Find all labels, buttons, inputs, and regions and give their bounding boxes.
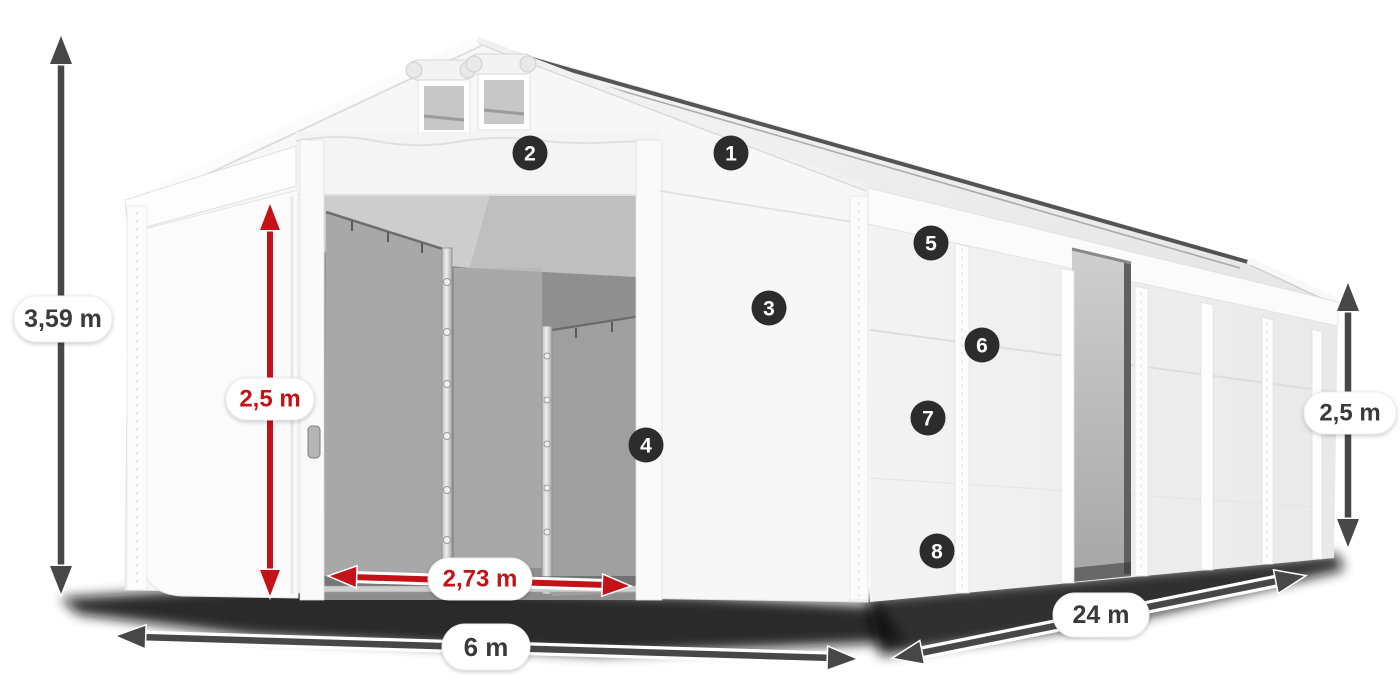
dimension-total-height: 3,59 m	[14, 36, 112, 594]
tent-illustration	[125, 40, 1338, 602]
interior-ceiling-right	[470, 196, 654, 278]
frame-pole-1	[442, 248, 452, 586]
door-jamb-right	[636, 140, 662, 600]
callout-5: 5	[914, 226, 949, 261]
callout-1: 1	[714, 136, 749, 171]
side-door-pole	[1124, 262, 1131, 574]
side-height-label: 2,5 m	[1319, 400, 1380, 427]
callout-8: 8	[920, 534, 955, 569]
inner-curtain-1	[324, 212, 446, 592]
product-diagram-stage: 3,59 m 2,5 m 2,73 m 6 m 24 m	[0, 0, 1400, 700]
callout-4-number: 4	[640, 435, 652, 458]
width-label: 6 m	[464, 632, 509, 662]
callout-3-number: 3	[763, 298, 775, 321]
callout-6-number: 6	[976, 335, 988, 358]
door-header-beam	[296, 132, 660, 196]
callout-7-number: 7	[922, 408, 934, 431]
callout-1-number: 1	[725, 143, 737, 166]
door-height-label: 2,5 m	[239, 386, 300, 413]
callout-5-number: 5	[925, 233, 937, 256]
total-height-label: 3,59 m	[24, 305, 102, 333]
front-door-opening	[322, 196, 654, 600]
callout-2: 2	[513, 136, 548, 171]
frame-pole-2	[542, 326, 552, 594]
door-handle	[308, 426, 320, 458]
door-width-label: 2,73 m	[443, 566, 518, 593]
interior-far-glimpse	[454, 268, 542, 568]
callout-6: 6	[965, 328, 1000, 363]
callout-8-number: 8	[931, 541, 943, 564]
length-label: 24 m	[1073, 601, 1130, 629]
callout-4: 4	[629, 428, 664, 463]
callout-3: 3	[752, 291, 787, 326]
callout-2-number: 2	[524, 143, 536, 166]
callout-7: 7	[911, 401, 946, 436]
side-door-opening	[1072, 248, 1131, 582]
tent-dimension-diagram: 3,59 m 2,5 m 2,73 m 6 m 24 m	[0, 0, 1400, 700]
door-jamb-left	[300, 140, 324, 600]
